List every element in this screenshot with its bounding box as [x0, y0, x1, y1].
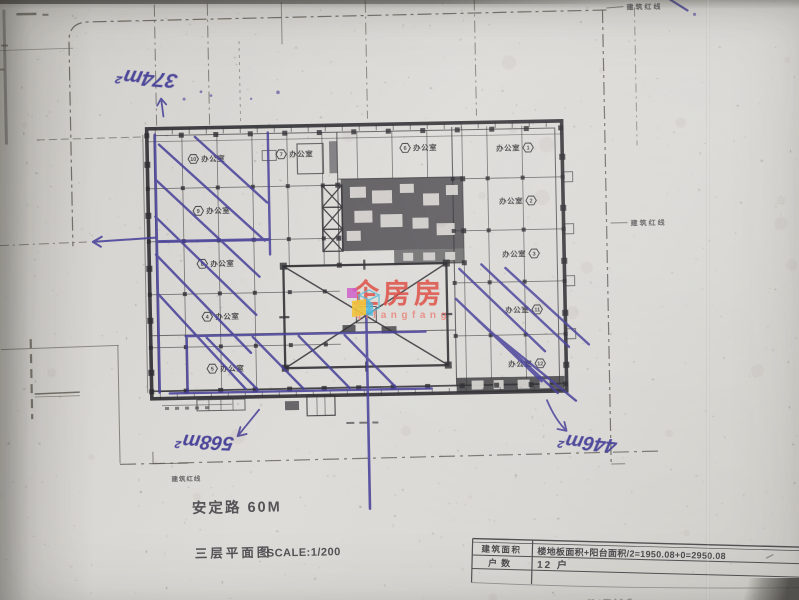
handwritten-568: 568m²	[173, 429, 235, 454]
arrow-to-568	[237, 410, 259, 436]
room-label: 1办公室	[496, 142, 533, 153]
bleed-text: 安定路60M	[552, 597, 634, 600]
handwritten-areas: 374m² 568m² 446m²	[113, 55, 620, 467]
pen-stray-topright	[667, 0, 687, 11]
room-label: 6办公室	[400, 142, 437, 153]
room-office-label: 办公室	[413, 142, 437, 152]
room-label: 3办公室	[502, 248, 539, 259]
table-row2-value: 12 户	[537, 558, 569, 572]
building-plan	[143, 121, 568, 427]
room-number: 5	[211, 367, 214, 373]
room-number: 12	[537, 361, 543, 367]
room-label: 7办公室	[276, 148, 313, 159]
room-office-label: 办公室	[289, 148, 313, 158]
arrow-left	[93, 236, 156, 247]
handwritten-374: 374m²	[113, 64, 180, 92]
room-number: 2	[530, 198, 533, 204]
handwritten-446: 446m²	[555, 429, 619, 457]
red-line-label-right: 建筑红线	[630, 218, 666, 228]
floor-plan-photo: 10办公室9办公室8办公室4办公室5办公室7办公室6办公室1办公室2办公室3办公…	[0, 0, 799, 600]
room-label: 2办公室	[499, 195, 536, 206]
red-line-label-top: 建筑红线	[626, 2, 662, 12]
room-number: 10	[190, 157, 196, 163]
room-office-label: 办公室	[499, 195, 523, 205]
arrow-to-446	[547, 400, 567, 431]
table-row1-label: 建筑面积	[480, 544, 521, 555]
info-table: 建筑面积 楼地板面积+阳台面积/2=1950.08+0=2950.08 户数 1…	[472, 539, 799, 593]
room-office-label: 办公室	[502, 248, 526, 258]
title-block: 安定路 60M 三层平面图 SCALE:1/200	[192, 496, 341, 561]
room-number: 11	[534, 307, 540, 313]
room-office-label: 办公室	[496, 142, 520, 152]
arrow-to-374	[157, 98, 166, 116]
room-number: 9	[197, 209, 200, 215]
road-label: 安定路 60M	[192, 497, 282, 517]
core-block	[322, 177, 465, 266]
table-row2-label: 户数	[488, 557, 514, 569]
room-number: 6	[404, 146, 407, 152]
room-number: 4	[206, 315, 210, 321]
plan-scale: SCALE:1/200	[267, 546, 341, 559]
room-number: 1	[527, 145, 530, 151]
room-number: 7	[280, 152, 283, 158]
room-office-label: 办公室	[210, 258, 234, 268]
plan-title: 三层平面图	[195, 545, 273, 560]
room-label: 9办公室	[193, 205, 230, 216]
room-number: 3	[533, 251, 536, 257]
blueprint-drawing: 10办公室9办公室8办公室4办公室5办公室7办公室6办公室1办公室2办公室3办公…	[0, 0, 799, 600]
red-line-label-bottom: 建筑红线	[170, 474, 201, 484]
